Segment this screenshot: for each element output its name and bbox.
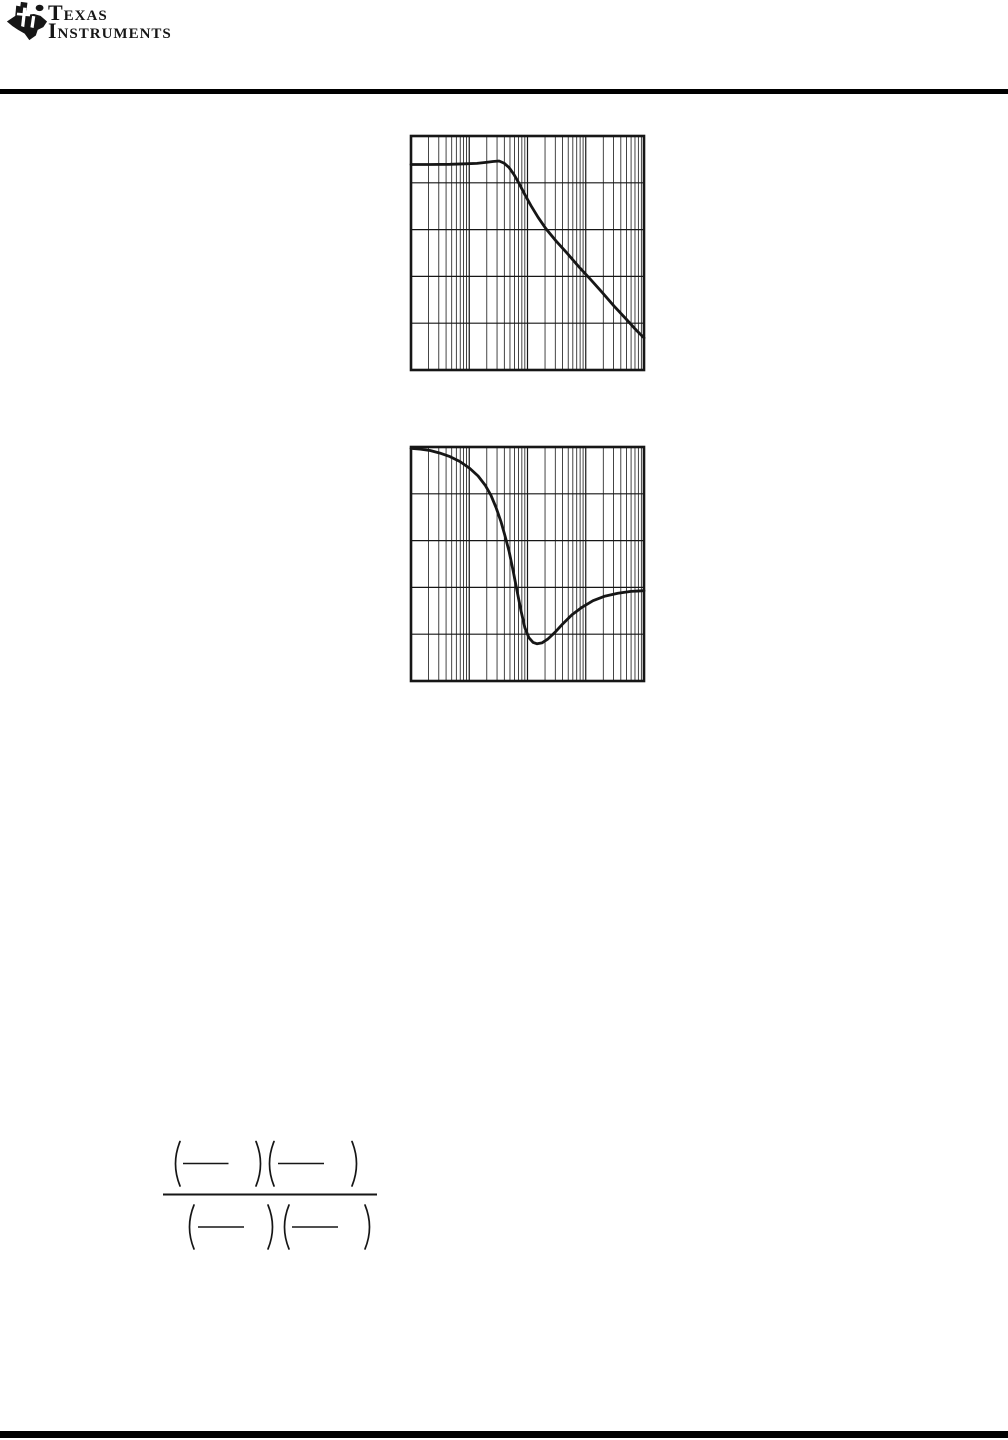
brand-line-2: Instruments (48, 22, 172, 40)
header-rule (0, 89, 1008, 94)
transfer-function-formula (155, 1128, 395, 1263)
magnitude-chart (408, 133, 647, 373)
header-logo: Texas Instruments (5, 1, 305, 47)
footer-bar (0, 1431, 1008, 1438)
datasheet-page: Texas Instruments (0, 0, 1008, 1440)
ti-texas-bug-icon (5, 1, 48, 41)
brand-wordmark: Texas Instruments (48, 4, 172, 40)
phase-chart (408, 444, 647, 684)
